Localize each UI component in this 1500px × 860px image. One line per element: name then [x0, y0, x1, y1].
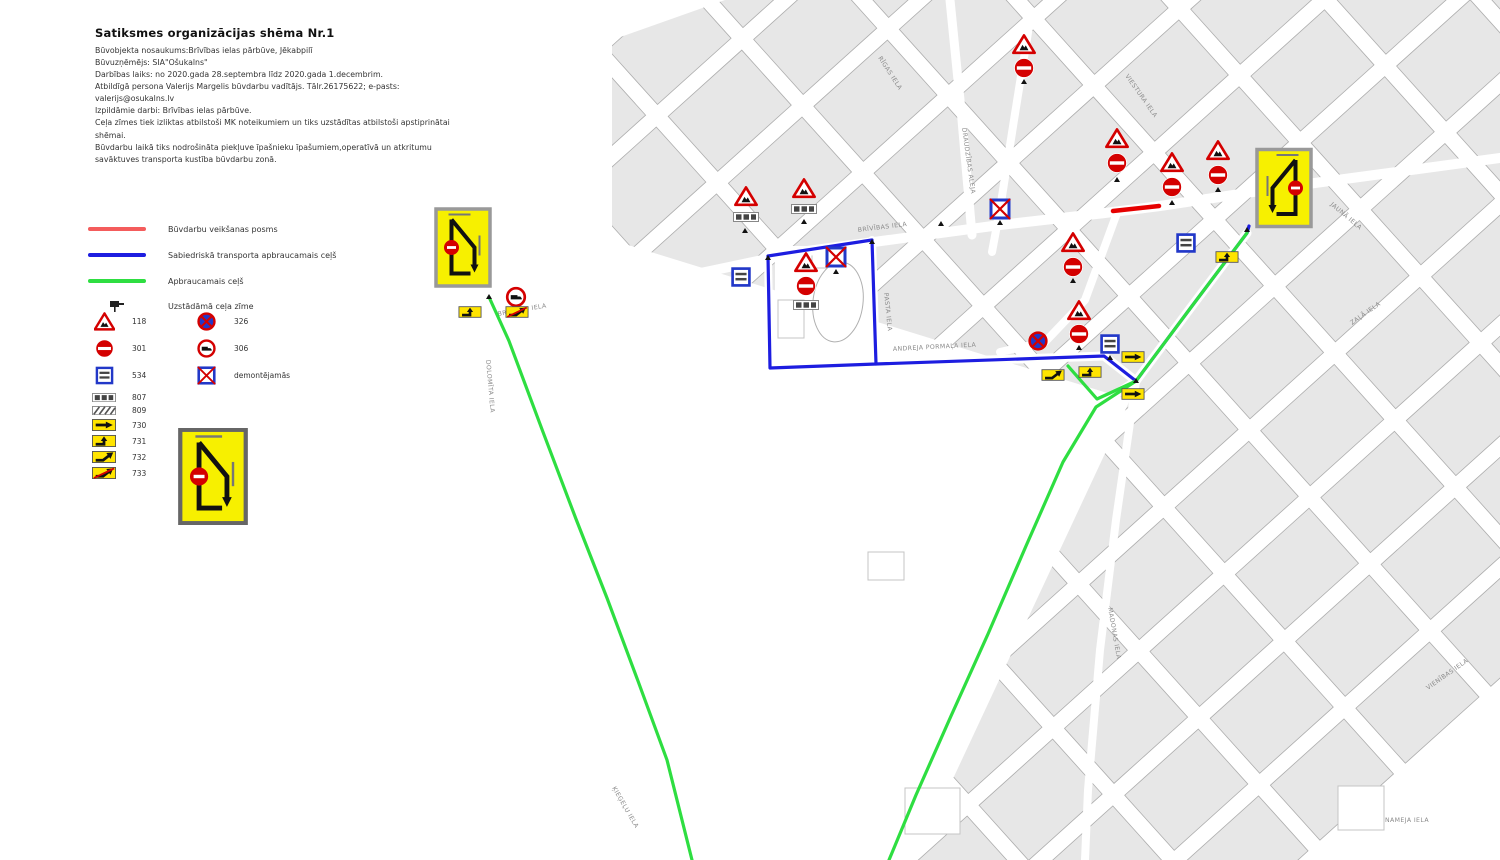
sign-post-marker — [1076, 345, 1082, 350]
road-sign-icon — [88, 299, 146, 313]
arrow2-sign-icon — [90, 435, 118, 447]
sign-code: demontējamās — [234, 371, 290, 380]
legend-sign-row: 534 — [90, 366, 190, 385]
legend-sign-row: 807 — [90, 393, 190, 402]
legend-line-item: Apbraucamais ceļš — [88, 268, 398, 294]
dismantled-sign-icon — [192, 366, 220, 385]
dismantled-road-sign — [826, 247, 846, 267]
arrow3-road-sign — [1042, 370, 1064, 381]
sign-code: 301 — [132, 344, 146, 353]
legend-line-label: Būvdarbu veikšanas posms — [168, 225, 278, 234]
legend-line-label: Sabiedriskā transporta apbraucamais ceļš — [168, 251, 336, 260]
legend-sign-row: 301 — [90, 339, 190, 358]
street-label: ĶIEĢEĻU IELA — [609, 786, 640, 831]
no-entry-road-sign — [1014, 58, 1033, 77]
route-color-swatch — [88, 253, 146, 257]
legend-sample-detour-sign — [178, 428, 248, 529]
legend: Būvdarbu veikšanas posmsSabiedriskā tran… — [88, 216, 398, 318]
sign-code: 118 — [132, 317, 146, 326]
arrow2-road-sign — [1079, 367, 1101, 378]
scheme-title: Satiksmes organizācijas shēma Nr.1 — [95, 26, 585, 40]
no-trucks-sign-icon — [192, 339, 220, 358]
legend-sign-row: 733 — [90, 467, 190, 479]
no-entry-sign-icon — [90, 339, 118, 358]
route-color-swatch — [88, 279, 146, 283]
no-stop-sign-icon — [192, 312, 220, 331]
detour-right-sign — [1257, 150, 1311, 227]
header-line: Ceļa zīmes tiek izliktas atbilstoši MK n… — [95, 117, 585, 129]
legend-route-lines: Būvdarbu veikšanas posmsSabiedriskā tran… — [88, 216, 398, 294]
arrow4-sign-icon — [90, 467, 118, 479]
legend-sign-row: demontējamās — [192, 366, 362, 385]
triangle-road-sign — [1062, 233, 1083, 250]
no-entry-road-sign — [1069, 324, 1088, 343]
arrow1-road-sign — [1122, 389, 1144, 400]
bus-bars-road-sign — [731, 267, 750, 286]
legend-line-item: Būvdarbu veikšanas posms — [88, 216, 398, 242]
no-entry-road-sign — [796, 276, 815, 295]
no-entry-road-sign — [1107, 153, 1126, 172]
header-line: Būvdarbu laikā tiks nodrošināta piekļuve… — [95, 142, 585, 154]
header-line: Būvuzņēmējs: SIA"Ošukalns" — [95, 57, 585, 69]
header-line: savāktuves transporta kustība būvdarbu z… — [95, 154, 585, 166]
arrow1-sign-icon — [90, 419, 118, 431]
header-line: Darbības laiks: no 2020.gada 28.septembr… — [95, 69, 585, 81]
legend-sign-row: 326 — [192, 312, 362, 331]
triangle-sign-icon — [90, 312, 118, 331]
plate-sign-icon — [90, 393, 118, 402]
sign-code: 733 — [132, 469, 146, 478]
no-stop-road-sign — [1030, 333, 1047, 350]
sign-code: 534 — [132, 371, 146, 380]
sign-code: 326 — [234, 317, 248, 326]
legend-signs-column-2: 326306demontējamās — [192, 312, 362, 393]
header-line: shēmai. — [95, 130, 585, 142]
arrow2-road-sign — [459, 307, 481, 318]
arrow3-sign-icon — [90, 451, 118, 463]
no-trucks-road-sign — [507, 288, 525, 306]
sign-code: 306 — [234, 344, 248, 353]
no-entry-road-sign — [1063, 257, 1082, 276]
bus-bars-sign-icon — [90, 366, 118, 385]
header-line: Izpildāmie darbi: Brīvības ielas pārbūve… — [95, 105, 585, 117]
plate2-sign-icon — [90, 406, 118, 415]
legend-line-item: Sabiedriskā transporta apbraucamais ceļš — [88, 242, 398, 268]
header-line: valerijs@osukalns.lv — [95, 93, 585, 105]
legend-sign-row: 809 — [90, 406, 190, 415]
route-color-swatch — [88, 227, 146, 231]
arrow4-road-sign — [506, 307, 528, 318]
street-label: ANDREJA PORMAĻA IELA — [893, 342, 977, 354]
dismantled-road-sign — [990, 199, 1010, 219]
stadium-block — [775, 246, 872, 364]
legend-sign-row: 118 — [90, 312, 190, 331]
legend-sign-row: 732 — [90, 451, 190, 463]
legend-note-label: Uzstādāmā ceļa zīme — [168, 302, 254, 311]
sign-code: 732 — [132, 453, 146, 462]
detour-left-sign — [436, 209, 490, 286]
street-label: NAMEJA IELA — [1385, 817, 1429, 824]
sign-post-marker — [801, 219, 807, 224]
plate-road-sign — [794, 301, 819, 310]
sign-code: 731 — [132, 437, 146, 446]
header-line: Atbildīgā persona Valerijs Margelis būvd… — [95, 81, 585, 93]
sign-code: 807 — [132, 393, 146, 402]
plate-road-sign — [792, 205, 817, 214]
arrow2-road-sign — [1216, 252, 1238, 263]
legend-signs-column-1: 118301534807809730731732733 — [90, 312, 190, 483]
header-line: Būvobjekta nosaukums:Brīvības ielas pārb… — [95, 45, 585, 57]
sign-code: 730 — [132, 421, 146, 430]
sign-post-marker — [1114, 177, 1120, 182]
legend-line-label: Apbraucamais ceļš — [168, 277, 244, 286]
sign-post-marker — [938, 221, 944, 226]
street-label: DOLOMĪTA IELA — [484, 359, 498, 413]
scheme-description: Būvobjekta nosaukums:Brīvības ielas pārb… — [95, 45, 585, 166]
sign-code: 809 — [132, 406, 146, 415]
legend-sign-row: 731 — [90, 435, 190, 447]
bus-bars-road-sign — [1176, 233, 1195, 252]
header: Satiksmes organizācijas shēma Nr.1 Būvob… — [95, 26, 585, 166]
legend-sign-row: 730 — [90, 419, 190, 431]
legend-sign-row: 306 — [192, 339, 362, 358]
no-entry-road-sign — [1208, 165, 1227, 184]
no-entry-road-sign — [1162, 177, 1181, 196]
plate-road-sign — [734, 213, 759, 222]
arrow1-road-sign — [1122, 352, 1144, 363]
bus-bars-road-sign — [1100, 334, 1119, 353]
